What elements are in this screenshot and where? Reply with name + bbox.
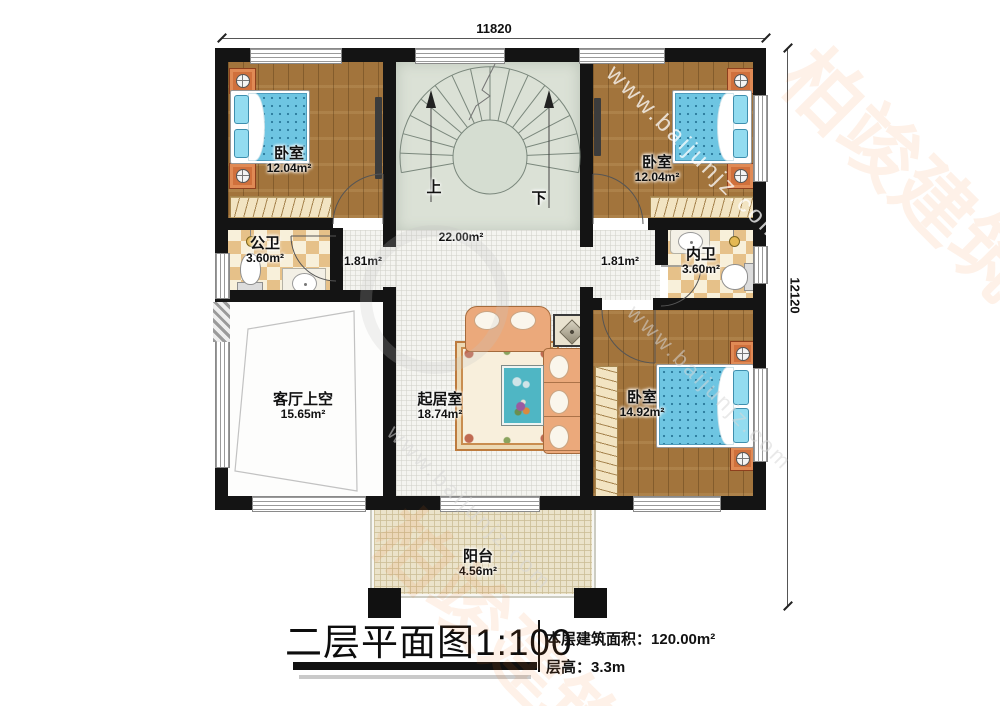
toilet [721, 264, 748, 290]
window-balcony-door [440, 496, 540, 512]
sofa-pillow [549, 390, 569, 414]
wall-stair-right [580, 60, 593, 247]
label-stairs-up: 上 [426, 180, 441, 196]
nightstand [730, 446, 755, 471]
pillow [733, 95, 748, 124]
plan-title: 二层平面图1:100 [285, 612, 573, 666]
wardrobe-top-right [650, 196, 754, 219]
window-bath-public [215, 253, 230, 299]
sofa-pillow [549, 425, 569, 449]
duvet-fold [717, 367, 734, 445]
window-bedroom-br-right [753, 368, 768, 462]
room-name: 客厅上空 [273, 392, 333, 408]
floor-area-label: 本层建筑面积： [546, 631, 651, 648]
pillow [234, 129, 249, 158]
room-area: 1.81m² [344, 255, 382, 268]
wall-bedroom-br-top [653, 298, 766, 310]
floor-height-info: 层高：3.3m [546, 656, 625, 677]
title-underline-shadow [299, 675, 531, 679]
room-area: 18.74m² [417, 408, 462, 421]
pillow [234, 95, 249, 124]
room-name: 阳台 [459, 549, 497, 565]
label-corridor-left: 1.81m² [344, 255, 382, 268]
label-void: 客厅上空 15.65m² [273, 392, 333, 420]
sofa-top [465, 306, 551, 352]
window-bedroom-tr [579, 48, 665, 64]
sofa-pillow [474, 311, 500, 330]
label-bath-private: 内卫 3.60m² [682, 247, 720, 275]
label-bedroom-tl: 卧室 12.04m² [267, 146, 312, 174]
room-name: 卧室 [620, 390, 665, 406]
label-bedroom-tr: 卧室 12.04m² [635, 155, 680, 183]
label-stairs-down: 下 [531, 191, 546, 207]
floor-height-label: 层高： [546, 659, 591, 676]
nightstand [727, 163, 754, 189]
sofa-pillow [510, 311, 536, 330]
window-bedroom-tr-right [753, 95, 768, 182]
window-bedroom-br-bottom [633, 496, 721, 512]
wall-void-right [383, 287, 396, 510]
nightstand [229, 163, 256, 189]
dimension-tick [783, 43, 793, 53]
label-bedroom-br: 卧室 14.92m² [620, 390, 665, 418]
dimension-line-right [787, 48, 788, 606]
wall-stair-left [383, 60, 396, 247]
room-area: 12.04m² [267, 162, 312, 175]
room-name: 起居室 [417, 392, 462, 408]
room-name: 卧室 [635, 155, 680, 171]
ceiling-lamp [729, 236, 740, 247]
room-area: 4.56m² [459, 565, 497, 578]
wall-break-hatch [213, 302, 230, 342]
plan-title-text: 二层平面图 [285, 622, 475, 663]
bed-top-right [672, 90, 752, 164]
room-area: 1.81m² [601, 255, 639, 268]
floor-area-info: 本层建筑面积：120.00m² [546, 628, 715, 649]
room-area: 3.60m² [682, 263, 720, 276]
label-balcony: 阳台 4.56m² [459, 549, 497, 577]
wall-bedroom-br-left [580, 287, 593, 510]
wall-bath-public-bottom [215, 290, 396, 302]
sofa-pillow [549, 355, 569, 379]
label-living: 起居室 18.74m² [417, 392, 462, 420]
window-void-left [215, 340, 230, 468]
floor-height-value: 3.3m [591, 659, 625, 676]
room-area: 22.00m² [439, 231, 484, 244]
dimension-width-text: 11820 [454, 21, 534, 36]
pillow [733, 370, 749, 405]
wall-bedroom-tl-bottom [228, 218, 333, 230]
room-area: 12.04m² [635, 171, 680, 184]
label-hall-area: 22.00m² [439, 231, 484, 244]
floor-area-value: 120.00m² [651, 631, 715, 648]
room-area: 15.65m² [273, 408, 333, 421]
label-corridor-right: 1.81m² [601, 255, 639, 268]
coffee-table [502, 366, 543, 425]
title-divider [538, 620, 540, 672]
room-area: 14.92m² [620, 406, 665, 419]
duvet-fold [717, 93, 734, 161]
label-bath-public: 公卫 3.60m² [246, 236, 284, 264]
wardrobe-top-left [230, 196, 332, 219]
title-block: 二层平面图1:100 本层建筑面积：120.00m² 层高：3.3m [285, 612, 765, 692]
pillow [733, 129, 748, 158]
dimension-line-top [222, 38, 766, 39]
wall-bath-private-left [655, 228, 668, 265]
nightstand [730, 341, 755, 366]
room-name: 内卫 [682, 247, 720, 263]
room-name: 卧室 [267, 146, 312, 162]
room-area: 3.60m² [246, 252, 284, 265]
tv-panel [594, 98, 601, 156]
window-void-bottom [252, 496, 366, 512]
floor-stair-room [396, 62, 580, 232]
room-name: 公卫 [246, 236, 284, 252]
dimension-tick [783, 601, 793, 611]
tv-panel [375, 97, 382, 179]
window-bedroom-tl [250, 48, 342, 64]
floorplan-canvas: 卧室 12.04m² 卧室 12.04m² 公卫 3.60m² 内卫 3.60m… [0, 0, 1000, 706]
title-underline [293, 662, 537, 670]
pillow [733, 408, 749, 443]
wardrobe-bottom-right [595, 366, 618, 498]
window-stair-room [415, 48, 505, 64]
dimension-depth-text: 12120 [788, 266, 803, 326]
window-bath-private-right [753, 246, 768, 284]
bed-bottom-right [656, 364, 754, 448]
